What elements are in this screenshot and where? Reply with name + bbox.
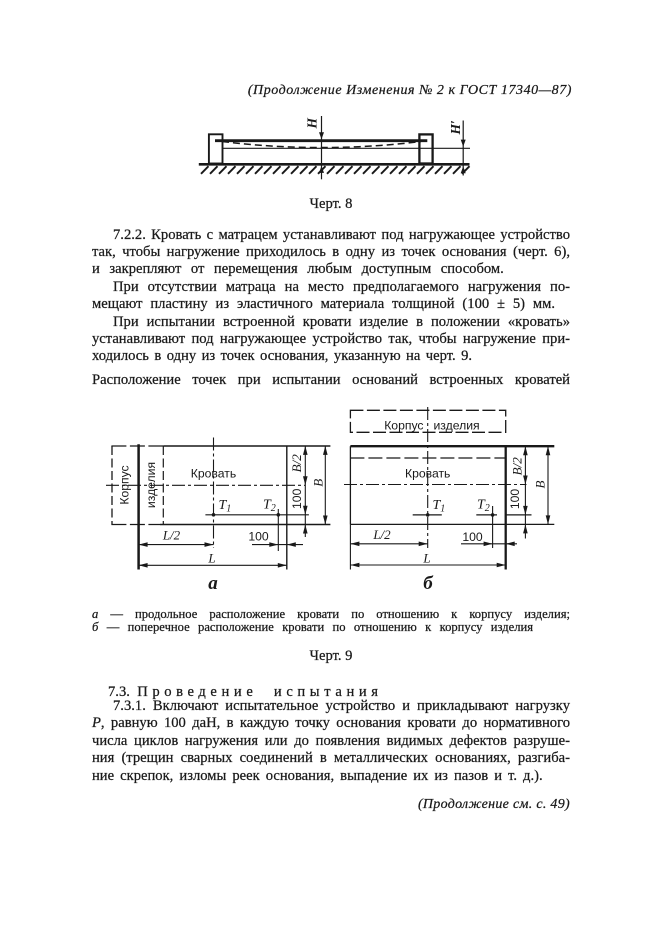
svg-text:L/2: L/2 [372, 527, 391, 542]
svg-text:H′: H′ [448, 120, 463, 136]
svg-text:изделия: изделия [434, 419, 480, 433]
svg-text:Кровать: Кровать [405, 467, 450, 481]
svg-text:B/2: B/2 [509, 457, 524, 476]
svg-text:T1: T1 [433, 498, 446, 515]
svg-text:Корпус: Корпус [118, 465, 132, 504]
svg-text:Кровать: Кровать [191, 467, 236, 481]
svg-text:B: B [311, 479, 326, 487]
svg-text:B/2: B/2 [289, 454, 304, 473]
svg-text:100: 100 [248, 530, 269, 544]
svg-text:H: H [305, 118, 320, 130]
svg-text:T1: T1 [219, 498, 232, 515]
svg-text:T2: T2 [263, 498, 276, 515]
svg-text:100: 100 [462, 530, 483, 544]
svg-text:Корпус: Корпус [384, 419, 423, 433]
svg-text:L/2: L/2 [162, 527, 181, 542]
svg-text:100: 100 [508, 489, 522, 510]
svg-text:B: B [532, 480, 547, 488]
svg-text:изделия: изделия [144, 462, 158, 508]
svg-text:а: а [208, 573, 218, 594]
svg-text:L: L [207, 551, 215, 566]
svg-text:100: 100 [290, 488, 304, 509]
svg-text:б: б [423, 573, 434, 594]
svg-text:L: L [422, 550, 430, 565]
svg-text:T2: T2 [477, 498, 490, 515]
